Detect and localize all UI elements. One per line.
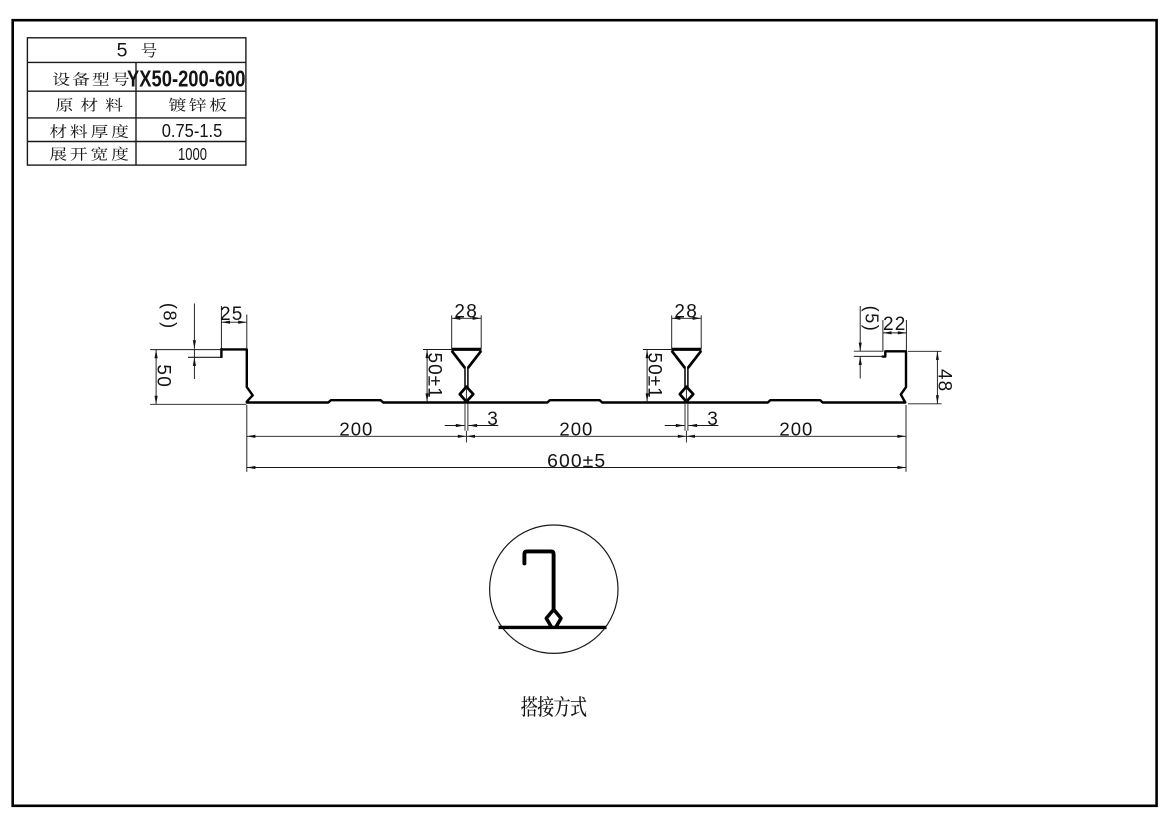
svg-text:28: 28	[674, 302, 698, 323]
svg-text:5: 5	[117, 40, 128, 62]
svg-text:YX50-200-600: YX50-200-600	[127, 65, 246, 91]
svg-text:50±1: 50±1	[423, 353, 444, 399]
svg-text:25: 25	[220, 304, 244, 325]
svg-text:200: 200	[339, 418, 373, 439]
svg-text:48: 48	[934, 369, 955, 393]
svg-text:3: 3	[487, 409, 499, 430]
svg-text:50: 50	[152, 364, 173, 388]
svg-text:28: 28	[454, 302, 478, 323]
svg-text:(8): (8)	[160, 303, 180, 330]
svg-text:600±5: 600±5	[547, 450, 606, 471]
svg-text:3: 3	[707, 409, 719, 430]
svg-text:(5): (5)	[862, 306, 882, 333]
svg-text:50±1: 50±1	[643, 353, 664, 399]
svg-text:200: 200	[559, 418, 593, 439]
svg-text:200: 200	[779, 418, 813, 439]
svg-text:22: 22	[883, 314, 907, 335]
svg-text:0.75-1.5: 0.75-1.5	[162, 120, 223, 141]
svg-text:1000: 1000	[178, 144, 207, 164]
